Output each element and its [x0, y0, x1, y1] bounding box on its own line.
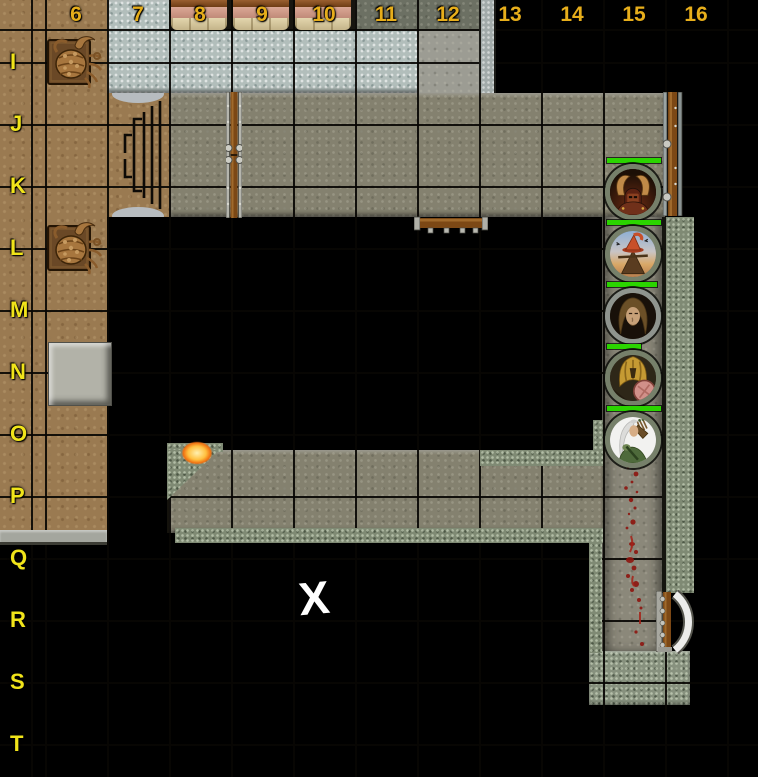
golden-armored-figure-portrait [610, 355, 656, 401]
row-label-N: N [0, 341, 52, 403]
column-label-11: 11 [355, 0, 417, 30]
junction-top-wall [480, 450, 603, 466]
row-label-L: L [0, 217, 52, 279]
map-canvas[interactable]: X 6 7 8 9 10 11 12 13 14 15 16 I J K L M… [0, 0, 758, 777]
x-map-marker: X [286, 570, 342, 626]
elf-archer-portrait [610, 417, 656, 463]
health-bar [607, 344, 641, 349]
long-haired-man-portrait [610, 293, 656, 339]
torch-icon [177, 438, 217, 468]
east-corridor-left-wall-lower [589, 528, 602, 653]
column-label-7: 7 [107, 0, 169, 30]
token-elf-archer[interactable] [604, 405, 664, 467]
column-label-14: 14 [541, 0, 603, 30]
door-south-hall[interactable] [414, 216, 488, 236]
health-bar [607, 282, 657, 287]
double-door-west[interactable] [226, 92, 242, 218]
pressure-plate-tile [48, 342, 112, 406]
row-label-T: T [0, 713, 52, 775]
south-corridor-bottom-wall [175, 528, 603, 543]
flat-stone-tile [417, 31, 479, 93]
column-label-8: 8 [169, 0, 231, 30]
giant-crab-token[interactable] [45, 220, 105, 276]
health-bar [607, 406, 661, 411]
token-long-haired-man[interactable] [604, 281, 664, 343]
east-corridor-left-wall-upper [593, 420, 603, 450]
column-label-6: 6 [45, 0, 107, 30]
column-label-12: 12 [417, 0, 479, 30]
row-label-M: M [0, 279, 52, 341]
row-label-J: J [0, 93, 52, 155]
token-scarecrow-witch[interactable] [604, 219, 664, 281]
row-label-O: O [0, 403, 52, 465]
door-east-hall[interactable] [663, 92, 683, 216]
column-label-15: 15 [603, 0, 665, 30]
giant-crab-token[interactable] [45, 34, 105, 90]
blood-trail [606, 448, 662, 653]
token-portrait-frame [605, 288, 661, 344]
token-portrait-frame [605, 226, 661, 282]
token-portrait-frame [605, 350, 661, 406]
curved-archway [671, 590, 697, 654]
row-label-K: K [0, 155, 52, 217]
column-label-16: 16 [665, 0, 727, 30]
row-label-R: R [0, 589, 52, 651]
token-horned-helmet-warrior[interactable] [604, 157, 664, 219]
hall-room-floor [169, 93, 665, 217]
column-label-9: 9 [231, 0, 293, 30]
staircase-down-icon [107, 93, 169, 217]
scarecrow-witch-portrait [610, 231, 656, 277]
row-label-I: I [0, 31, 52, 93]
row-label-S: S [0, 651, 52, 713]
column-label-10: 10 [293, 0, 355, 30]
health-bar [607, 158, 661, 163]
row-label-P: P [0, 465, 52, 527]
token-portrait-frame [605, 412, 661, 468]
south-east-chamber-floor [589, 651, 690, 705]
row-label-Q: Q [0, 527, 52, 589]
column-label-13: 13 [479, 0, 541, 30]
token-portrait-frame [605, 164, 661, 220]
horned-helmet-warrior-portrait [610, 169, 656, 215]
health-bar [607, 220, 661, 225]
token-golden-armored-figure[interactable] [604, 343, 664, 405]
east-corridor-right-wall [662, 217, 694, 593]
